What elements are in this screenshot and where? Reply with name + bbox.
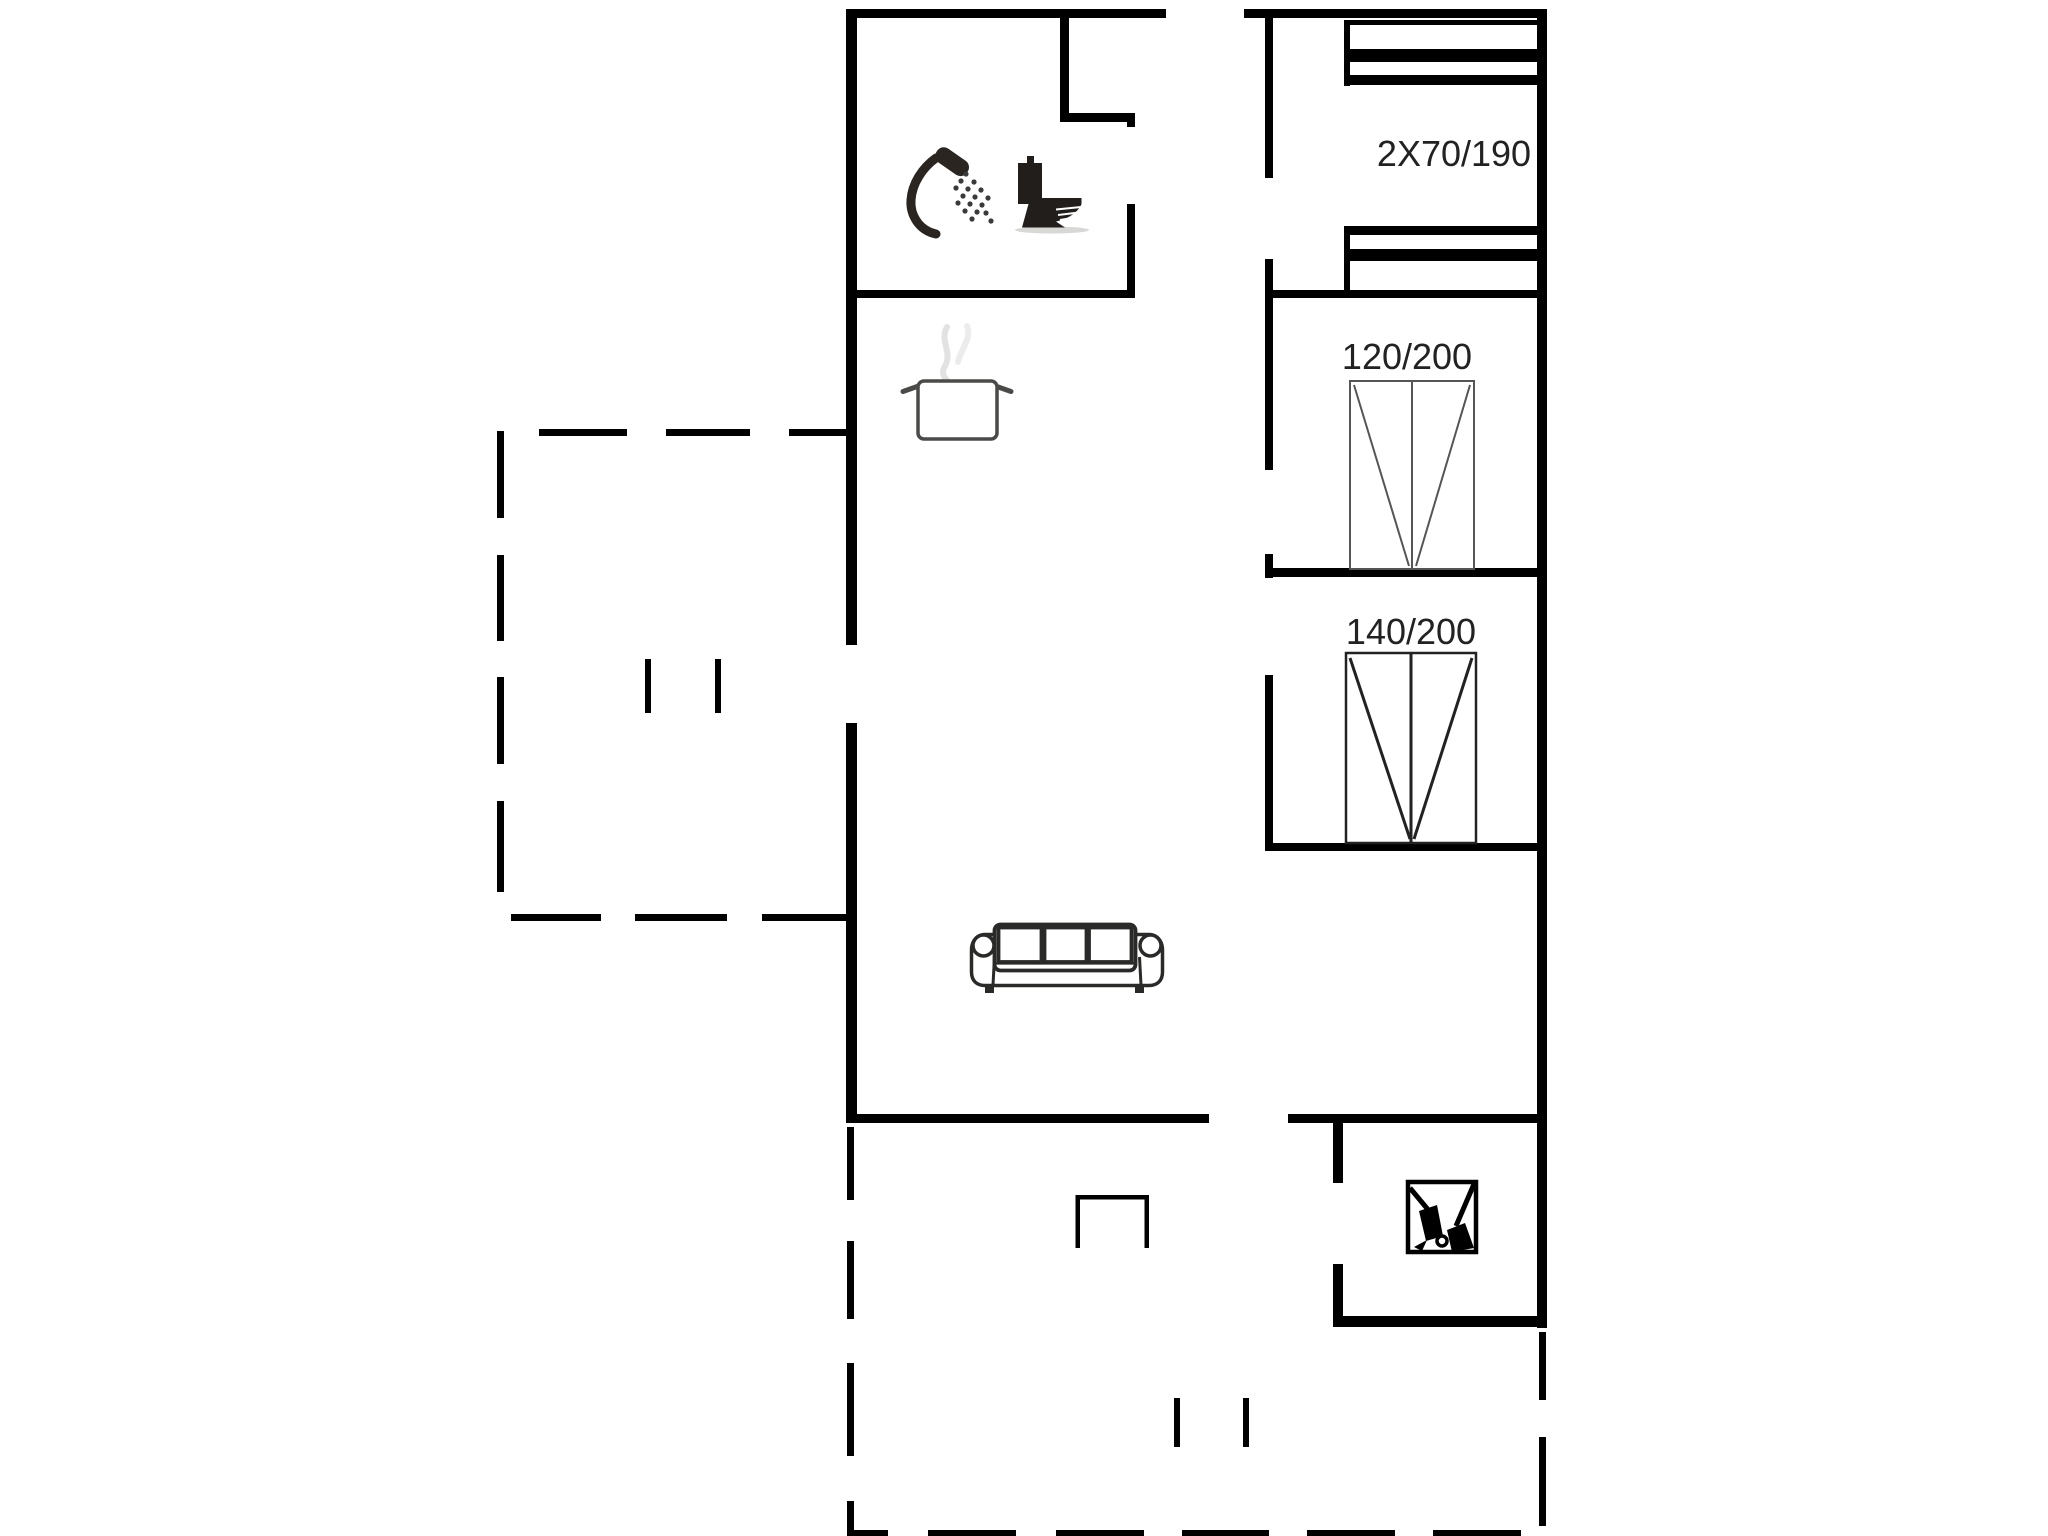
svg-text:140/200: 140/200 [1346,611,1476,652]
svg-text:2X70/190: 2X70/190 [1377,133,1531,174]
svg-text:120/200: 120/200 [1342,336,1472,377]
